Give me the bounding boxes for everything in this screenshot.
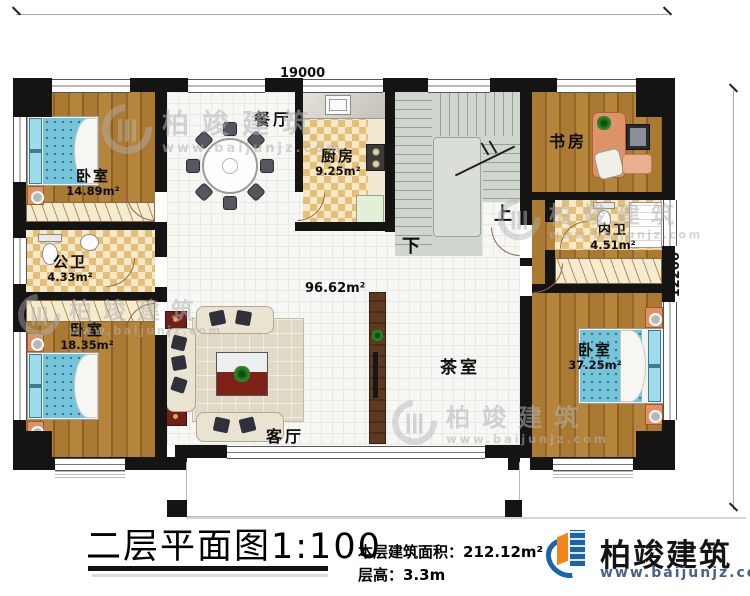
floor-area-label: 本层建筑面积：	[358, 543, 463, 561]
dining-chair	[186, 159, 200, 173]
stairs-down-label: 下	[402, 232, 420, 258]
wardrobe-bedroom-right	[555, 258, 662, 284]
study-side-table	[622, 154, 652, 174]
kitchen-sink	[325, 95, 351, 115]
stair-flight-left	[395, 92, 432, 247]
floor-info: 本层建筑面积：212.12m² 层高：3.3m	[358, 541, 543, 588]
room-name: 公卫	[25, 254, 115, 271]
plant-icon	[234, 366, 250, 382]
dining-label: 餐厅	[254, 106, 292, 130]
terrace-outline	[186, 462, 520, 517]
wall-segment	[662, 117, 675, 200]
wall-segment	[26, 222, 167, 230]
wall-segment	[545, 200, 555, 222]
wall-segment	[13, 420, 26, 431]
wall-segment	[295, 222, 395, 231]
window	[663, 200, 677, 246]
window	[55, 458, 125, 471]
sofa-pillow	[235, 310, 252, 326]
room-area: 37.25m²	[550, 359, 640, 372]
brand-logo-icon	[545, 527, 593, 583]
wall-segment	[520, 258, 532, 266]
title-underline-shadow	[92, 574, 328, 577]
dining-chair	[223, 196, 237, 210]
nightstand	[27, 186, 44, 205]
wall-segment	[13, 182, 26, 238]
window	[663, 302, 677, 420]
plant-icon	[372, 330, 383, 341]
bedroom-right-label: 卧室 37.25m²	[550, 342, 640, 372]
room-area: 14.89m²	[48, 185, 138, 198]
floor-plan-canvas: 19000 12200 下 上	[0, 0, 750, 596]
stair-flight-top	[432, 92, 520, 136]
floor-height-label: 层高：	[358, 566, 403, 584]
wall-segment	[26, 292, 167, 300]
logo-blue-building	[570, 530, 585, 566]
hall-area-label: 96.62m²	[305, 281, 365, 296]
window-sill	[55, 471, 125, 479]
window	[227, 446, 485, 459]
nightstand	[645, 404, 663, 425]
wall-segment	[130, 78, 188, 92]
toilet-icon	[38, 234, 62, 242]
bed-pillows	[648, 330, 661, 402]
top-dimension-line	[16, 14, 668, 15]
plant-icon	[597, 116, 611, 130]
dining-chair	[223, 122, 237, 136]
room-name: 卧室	[48, 168, 138, 185]
bedroom-top-left-label: 卧室 14.89m²	[48, 168, 138, 198]
bed-blanket	[74, 354, 98, 418]
window	[188, 79, 265, 93]
room-area: 18.35m²	[42, 339, 132, 352]
bed-pillows	[29, 118, 42, 184]
logo-orange-building	[557, 533, 568, 565]
stair-landing	[433, 137, 481, 237]
wall-corner	[13, 431, 52, 470]
wall-segment	[385, 92, 395, 232]
wall-segment	[520, 92, 532, 225]
dining-chair	[260, 159, 274, 173]
wall-corner	[636, 78, 675, 117]
window	[13, 332, 27, 420]
fridge	[356, 195, 384, 223]
window	[52, 79, 130, 93]
wall-segment	[662, 420, 675, 431]
room-area: 9.25m²	[293, 165, 383, 178]
brand-url: www.baijunjz.com	[600, 565, 750, 581]
toilet-icon	[593, 202, 615, 209]
room-name: 卧室	[550, 342, 640, 359]
kitchen-label: 厨房 9.25m²	[293, 148, 383, 178]
terrace-pillar	[505, 500, 522, 517]
sofa-pillow	[171, 355, 187, 371]
ensuite-bath-label: 内卫 4.51m²	[578, 224, 648, 252]
wall-segment	[662, 246, 675, 302]
tv	[373, 352, 378, 398]
title-underline	[88, 566, 328, 571]
window	[428, 79, 490, 93]
wall-segment	[265, 78, 303, 92]
room-area: 4.33m²	[25, 271, 115, 284]
wall-segment	[155, 335, 167, 457]
window	[303, 79, 383, 93]
end-table	[165, 311, 187, 329]
sofa-pillow	[213, 417, 231, 434]
public-bath-label: 公卫 4.33m²	[25, 254, 115, 284]
bed-pillows	[29, 354, 42, 418]
room-area: 4.51m²	[578, 239, 648, 252]
washbasin-icon	[80, 234, 99, 251]
wall-segment	[13, 284, 26, 332]
wall-segment	[520, 296, 532, 445]
nightstand	[645, 307, 663, 328]
room-name: 内卫	[578, 224, 648, 239]
terrace-pillar	[167, 500, 187, 517]
tea-room-label: 茶室	[440, 353, 480, 378]
computer-icon	[626, 124, 650, 150]
living-label: 客厅	[266, 423, 304, 447]
plan-title: 二层平面图1:100	[86, 518, 382, 569]
window-sill	[553, 471, 633, 479]
window	[553, 458, 633, 471]
wall-segment	[490, 78, 557, 92]
wall-segment	[383, 78, 428, 92]
stairs-up-label: 上	[494, 200, 512, 226]
wall-segment	[532, 192, 663, 200]
right-dimension-line	[733, 90, 734, 510]
window	[13, 117, 27, 182]
wall-corner	[13, 78, 52, 117]
wall-segment	[155, 92, 167, 192]
room-name: 厨房	[293, 148, 383, 165]
dining-table	[202, 138, 258, 194]
bedroom-bottom-left-label: 卧室 18.35m²	[42, 322, 132, 352]
window	[557, 79, 636, 93]
wall-corner	[636, 431, 675, 470]
study-label: 书房	[549, 128, 587, 152]
room-name: 卧室	[42, 322, 132, 339]
floor-height-value: 3.3m	[403, 566, 445, 584]
floor-area-value: 212.12m²	[463, 543, 543, 561]
